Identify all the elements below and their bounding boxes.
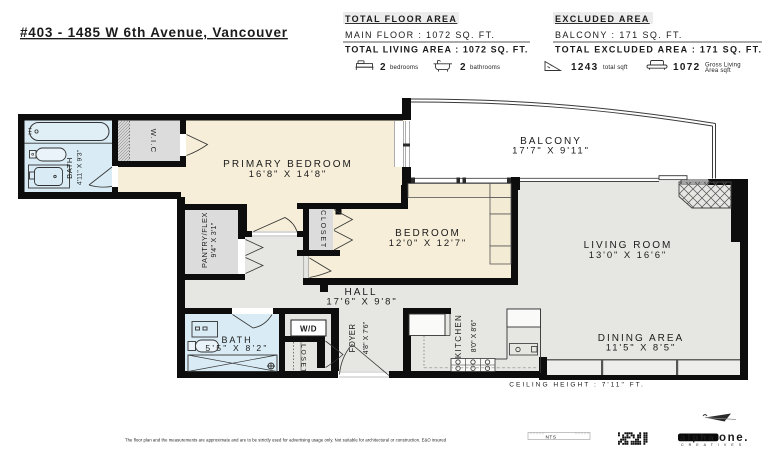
- svg-text:The floor plan and the measure: The floor plan and the measurements are …: [125, 438, 447, 443]
- svg-text:12'0" X 12'7": 12'0" X 12'7": [389, 238, 467, 249]
- svg-text:Area sqft: Area sqft: [705, 68, 731, 74]
- svg-text:CLOSET: CLOSET: [319, 210, 326, 249]
- svg-text:4'11" X 9'3": 4'11" X 9'3": [77, 149, 84, 185]
- svg-text:alpha: alpha: [680, 433, 716, 444]
- svg-text:CREATIVES: CREATIVES: [681, 443, 746, 447]
- svg-text:1243: 1243: [571, 62, 598, 73]
- svg-text:KITCHEN: KITCHEN: [454, 314, 463, 358]
- svg-text:BATH: BATH: [65, 157, 74, 179]
- svg-text:MAIN FLOOR : 1072 SQ. FT.: MAIN FLOOR : 1072 SQ. FT.: [345, 30, 495, 40]
- svg-text:16'8" X 14'8": 16'8" X 14'8": [249, 169, 327, 180]
- svg-text:4'8" X 7'6": 4'8" X 7'6": [363, 321, 370, 354]
- svg-text:W.I.C: W.I.C: [149, 129, 158, 154]
- svg-text:TOTAL FLOOR AREA: TOTAL FLOOR AREA: [345, 14, 457, 24]
- svg-text:W/D: W/D: [300, 325, 317, 334]
- svg-text:5'5" X 8'2": 5'5" X 8'2": [205, 343, 268, 353]
- svg-text:bedrooms: bedrooms: [390, 65, 418, 71]
- svg-text:PANTRY/FLEX: PANTRY/FLEX: [200, 212, 209, 268]
- svg-text:total sqft: total sqft: [603, 65, 628, 71]
- svg-text:2: 2: [380, 62, 386, 73]
- svg-text:TOTAL LIVING AREA : 1072 SQ.: TOTAL LIVING AREA : 1072 SQ. FT.: [345, 45, 528, 55]
- svg-text:CEILING HEIGHT : 7'11" FT.: CEILING HEIGHT : 7'11" FT.: [509, 382, 645, 389]
- svg-text:8'0" X 8'6": 8'0" X 8'6": [471, 319, 478, 352]
- svg-text:#403 - 1485 W 6th Avenue, Vanc: #403 - 1485 W 6th Avenue, Vancouver: [20, 25, 288, 40]
- svg-text:13'0" X 16'6": 13'0" X 16'6": [589, 250, 667, 261]
- svg-text:17'6" X 9'8": 17'6" X 9'8": [326, 297, 397, 308]
- svg-text:1072: 1072: [673, 62, 700, 73]
- svg-text:CLOSET: CLOSET: [300, 338, 307, 375]
- svg-text:2: 2: [460, 62, 466, 73]
- svg-text:9'4" X 3'1": 9'4" X 3'1": [211, 222, 218, 257]
- svg-text:BALCONY : 171 SQ. FT.: BALCONY : 171 SQ. FT.: [555, 30, 683, 40]
- svg-text:TOTAL EXCLUDED AREA : 171 SQ.: TOTAL EXCLUDED AREA : 171 SQ. FT.: [555, 45, 762, 55]
- svg-text:17'7" X 9'11": 17'7" X 9'11": [512, 146, 590, 157]
- svg-text:NTS: NTS: [545, 434, 556, 440]
- svg-text:11'5" X 8'5": 11'5" X 8'5": [606, 343, 677, 354]
- svg-text:EXCLUDED AREA: EXCLUDED AREA: [555, 14, 650, 24]
- svg-text:bathrooms: bathrooms: [470, 65, 500, 71]
